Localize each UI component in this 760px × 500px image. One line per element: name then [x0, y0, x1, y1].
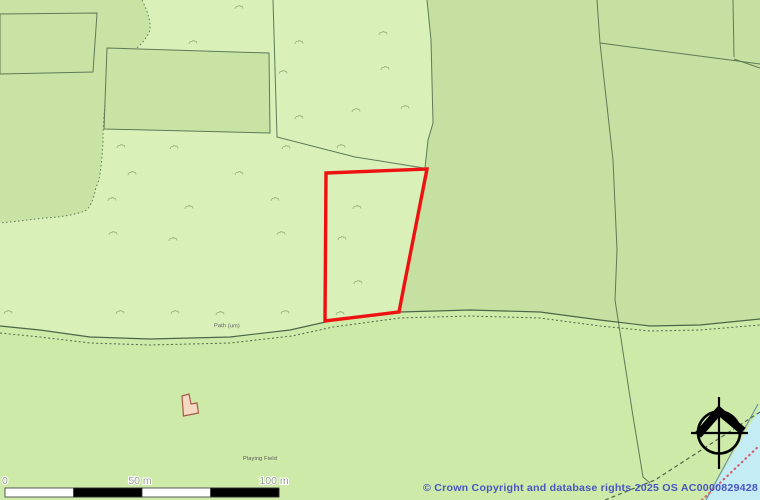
scale-bar-segment-black-1	[74, 488, 143, 497]
scale-label-hundred: 100 m	[259, 475, 288, 487]
path-label: Path (um)	[214, 323, 240, 329]
scale-label-zero: 0	[2, 475, 8, 487]
scale-label-fifty: 50 m	[128, 475, 152, 487]
map-canvas: Path (um) Playing Field 0 50 m 100 m © C…	[0, 0, 760, 500]
playing-field-label: Playing Field	[243, 456, 277, 462]
right-field-area	[399, 0, 760, 326]
copyright-text: © Crown Copyright and database rights 20…	[423, 482, 758, 494]
bottom-field-area	[0, 310, 760, 500]
parcel-middle	[104, 48, 270, 133]
scale-bar-segment-black-2	[211, 488, 280, 497]
parcel-top-left	[0, 13, 97, 74]
